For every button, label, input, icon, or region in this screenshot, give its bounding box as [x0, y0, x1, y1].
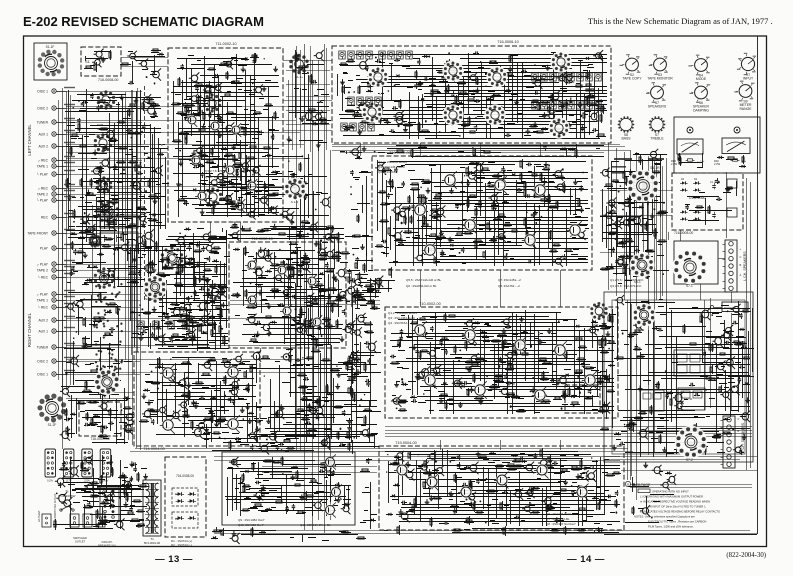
svg-text:710-0002-00: 710-0002-00 [419, 302, 441, 306]
svg-text:Q11: 2SA916-0R or BL: Q11: 2SA916-0R or BL [300, 523, 331, 527]
svg-text:OUTLET: OUTLET [75, 540, 86, 544]
svg-text:100V: 100V [47, 479, 53, 483]
svg-text:DISC 1: DISC 1 [37, 372, 48, 376]
svg-text:AN INPUT OF 1kHz 20mV IS FED T: AN INPUT OF 1kHz 20mV IS FED TO TUNER 1. [648, 505, 707, 509]
svg-text:AUX 1: AUX 1 [38, 132, 48, 136]
svg-text:TAPE 2: TAPE 2 [37, 192, 48, 196]
svg-text:Q5,5 : 2SA714A-GR or BL: Q5,5 : 2SA714A-GR or BL [406, 278, 442, 282]
svg-text:S4-1R: S4-1R [145, 297, 154, 301]
svg-text:DISC 2: DISC 2 [37, 359, 48, 363]
svg-text:Q4 : 2SC515A: Q4 : 2SC515A [388, 321, 407, 325]
svg-text:┌ PLAY: ┌ PLAY [37, 262, 49, 266]
svg-text:★ INDICATES RESPECTIVE VOLTAG: ★ INDICATES RESPECTIVE VOLTAGE READING W… [640, 500, 710, 504]
svg-text:E-202 REVISED SCHEMATIC DIAGRA: E-202 REVISED SCHEMATIC DIAGRAM [23, 14, 264, 29]
svg-text:┌ PLAY: ┌ PLAY [37, 292, 49, 296]
svg-text:Q6 : 2SA497 Oar7: Q6 : 2SA497 Oar7 [546, 512, 571, 516]
svg-text:Q3,4,5,8 : 2SA 679-R-K: Q3,4,5,8 : 2SA 679-R-K [610, 284, 642, 288]
svg-text:UNSWITCHED OUTLET: UNSWITCHED OUTLET [54, 493, 57, 520]
svg-text:FILM Types, 1/2W and ±5% tol: FILM Types, 1/2W and ±5% tolerance. [648, 525, 694, 529]
svg-text:BREAKER 10A: BREAKER 10A [98, 544, 116, 548]
svg-text:( ) OPERATING WITH MAXIMUM O: ( ) OPERATING WITH MAXIMUM OUTPUT POWER [640, 495, 703, 499]
svg-text:S6-1: S6-1 [634, 280, 641, 284]
svg-text:Q1,2 : 2SA620-WLH5: Q1,2 : 2SA620-WLH5 [378, 160, 407, 164]
svg-text:— 14 —: — 14 — [567, 554, 605, 565]
svg-text:TREBLE: TREBLE [650, 136, 664, 140]
svg-text:719-0004-00: 719-0004-00 [395, 441, 417, 445]
svg-text:Q1,2 : 2SA620-WLH5: Q1,2 : 2SA620-WLH5 [388, 311, 417, 315]
svg-text:DISC 2: DISC 2 [37, 106, 48, 110]
svg-text:Q9 : 2SC1382 Oar7: Q9 : 2SC1382 Oar7 [238, 518, 265, 522]
svg-text:S6-1R: S6-1R [650, 166, 660, 170]
svg-text:716-0008-00: 716-0008-00 [98, 78, 118, 82]
svg-text:DAMPING: DAMPING [693, 108, 709, 112]
svg-text:TAPE 2: TAPE 2 [37, 268, 48, 272]
svg-text:┌ REC: ┌ REC [38, 186, 49, 190]
svg-text:Q6 : 2SA856-GR or BL: Q6 : 2SA856-GR or BL [406, 284, 437, 288]
svg-text:S7-2: S7-2 [686, 458, 693, 462]
svg-text:This is the New Schematic: This is the New Schematic Diagram as of … [588, 16, 773, 26]
svg-text:TAPE 1: TAPE 1 [37, 164, 48, 168]
svg-text:716-0008-00: 716-0008-00 [176, 474, 194, 478]
svg-text:711-0002-10: 711-0002-10 [215, 42, 236, 46]
svg-text:712-0002-10: 712-0002-10 [251, 237, 273, 241]
svg-text:B: B [740, 263, 742, 267]
svg-text:(822-2004-30): (822-2004-30) [726, 552, 766, 559]
svg-text:└ REC: └ REC [38, 274, 49, 279]
svg-text:BASS: BASS [621, 136, 631, 140]
svg-text:└ PLAY: └ PLAY [37, 197, 49, 202]
svg-text:TAPE COPY: TAPE COPY [622, 77, 642, 81]
svg-text:Q3 : 2SC1451-Gor0: Q3 : 2SC1451-Gor0 [378, 165, 405, 169]
svg-text:B: B [738, 429, 740, 433]
svg-text:D2: D2 [175, 517, 179, 521]
svg-text:└ REC: └ REC [38, 304, 49, 309]
svg-text:716-0008-00: 716-0008-00 [674, 231, 693, 235]
svg-text:TUNER: TUNER [37, 120, 49, 124]
svg-text:OPERATING WITH NO INPUT: OPERATING WITH NO INPUT [652, 490, 689, 494]
svg-text:SWITCHED: SWITCHED [73, 536, 87, 540]
svg-text:5K3-3001-00: 5K3-3001-00 [144, 541, 161, 545]
svg-text:Q4 : 2SC515A: Q4 : 2SC515A [378, 170, 397, 174]
svg-text:TAPE FRONT: TAPE FRONT [27, 231, 48, 235]
svg-text:A: A [740, 273, 742, 277]
svg-text:Q7: 2SC1451-·-2: Q7: 2SC1451-·-2 [498, 278, 521, 282]
svg-text:AUX 2: AUX 2 [38, 318, 48, 322]
svg-text:S7-1: S7-1 [686, 284, 693, 288]
svg-text:S1-2F: S1-2F [48, 423, 57, 427]
svg-text:716-0007-00: 716-0007-00 [566, 380, 583, 384]
svg-text:Q10: 2SA682 Oar7: Q10: 2SA682 Oar7 [238, 523, 264, 527]
svg-text:R: R [627, 483, 629, 487]
svg-text:S6-2: S6-2 [592, 323, 599, 327]
svg-text:┌ REC: ┌ REC [38, 158, 49, 162]
svg-text:AUX 1: AUX 1 [38, 329, 48, 333]
svg-text:SPEAKERS: SPEAKERS [648, 105, 667, 109]
svg-text:C: C [740, 255, 742, 259]
svg-text:714-0004-00: 714-0004-00 [143, 447, 165, 451]
svg-text:2.2W: 2.2W [714, 162, 721, 166]
svg-text:Q3 : 2SC1451-Gor0: Q3 : 2SC1451-Gor0 [388, 316, 415, 320]
svg-text:LEFT CHANNEL: LEFT CHANNEL [27, 124, 32, 156]
svg-text:DISC 1: DISC 1 [37, 89, 48, 93]
svg-text:INPUT: INPUT [743, 76, 753, 80]
svg-text:Q8 : 2SC497 NorOar7: Q8 : 2SC497 NorOar7 [546, 522, 576, 526]
svg-text:TAPE 1: TAPE 1 [37, 298, 48, 302]
svg-text:Q3,4 : 2SC1714A-GRorBL: Q3,4 : 2SC1714A-GRorBL [205, 175, 241, 179]
svg-text:└ PLAY: └ PLAY [37, 171, 49, 176]
svg-text:— 13 —: — 13 — [155, 554, 193, 565]
svg-text:TAPE MONITOR: TAPE MONITOR [647, 77, 673, 81]
svg-text:Q8: 2SA762 -·-2: Q8: 2SA762 -·-2 [498, 284, 520, 288]
svg-text:S 1-3·: S 1-3· [291, 200, 299, 204]
svg-text:D2 : 1S3724 (–): D2 : 1S3724 (–) [171, 543, 192, 547]
svg-text:RIGHT CHANNEL: RIGHT CHANNEL [27, 312, 32, 347]
svg-text:AC INLET: AC INLET [37, 510, 41, 522]
svg-text:( ) INDICATES VOLTAGE READIN: ( ) INDICATES VOLTAGE READING BEFORE REL… [640, 510, 720, 514]
svg-text:2.2W: 2.2W [671, 162, 678, 166]
svg-text:CIRCUIT-: CIRCUIT- [101, 540, 112, 544]
svg-text:D1: D1 [175, 492, 179, 496]
svg-text:R CH. SPEAKERS: R CH. SPEAKERS [741, 422, 745, 453]
svg-text:716-0006-10: 716-0006-10 [497, 40, 519, 44]
svg-text:AUX 2: AUX 2 [38, 144, 48, 148]
svg-text:Q7 : 2SC1746-BL: Q7 : 2SC1746-BL [546, 517, 570, 521]
svg-text:REC: REC [41, 215, 49, 219]
svg-text:MODE: MODE [696, 77, 707, 81]
svg-text:TUNER: TUNER [37, 345, 49, 349]
svg-text:RANGE: RANGE [739, 107, 752, 111]
svg-text:S1-1F: S1-1F [46, 45, 55, 49]
svg-text:NOTES. Unless otherwise specif: NOTES. Unless otherwise specified Capaci… [634, 515, 695, 519]
svg-text:PLAY: PLAY [40, 246, 49, 250]
svg-text:C: C [738, 417, 740, 421]
